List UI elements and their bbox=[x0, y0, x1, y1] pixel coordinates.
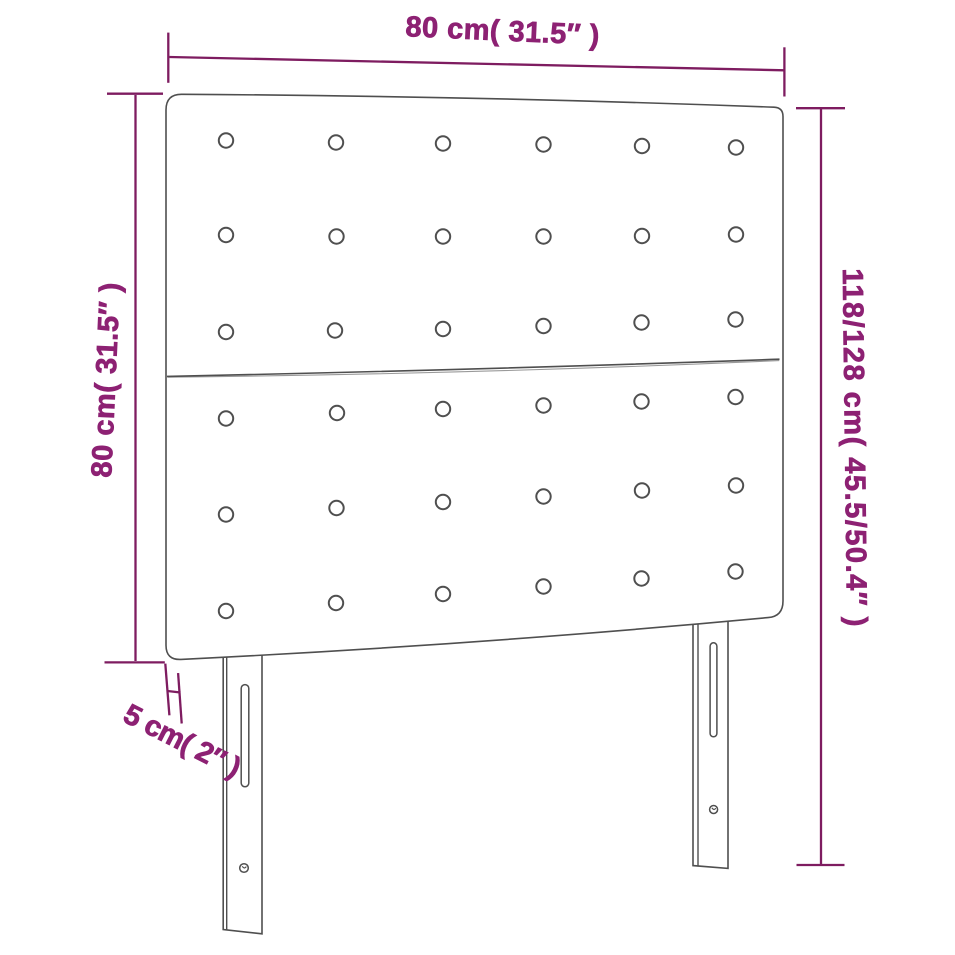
svg-text:80 cm( 31.5″ ): 80 cm( 31.5″ ) bbox=[86, 282, 127, 478]
svg-text:80 cm( 31.5″ ): 80 cm( 31.5″ ) bbox=[405, 11, 600, 52]
svg-text:118/128 cm( 45.5/50.4″ ): 118/128 cm( 45.5/50.4″ ) bbox=[836, 268, 872, 626]
